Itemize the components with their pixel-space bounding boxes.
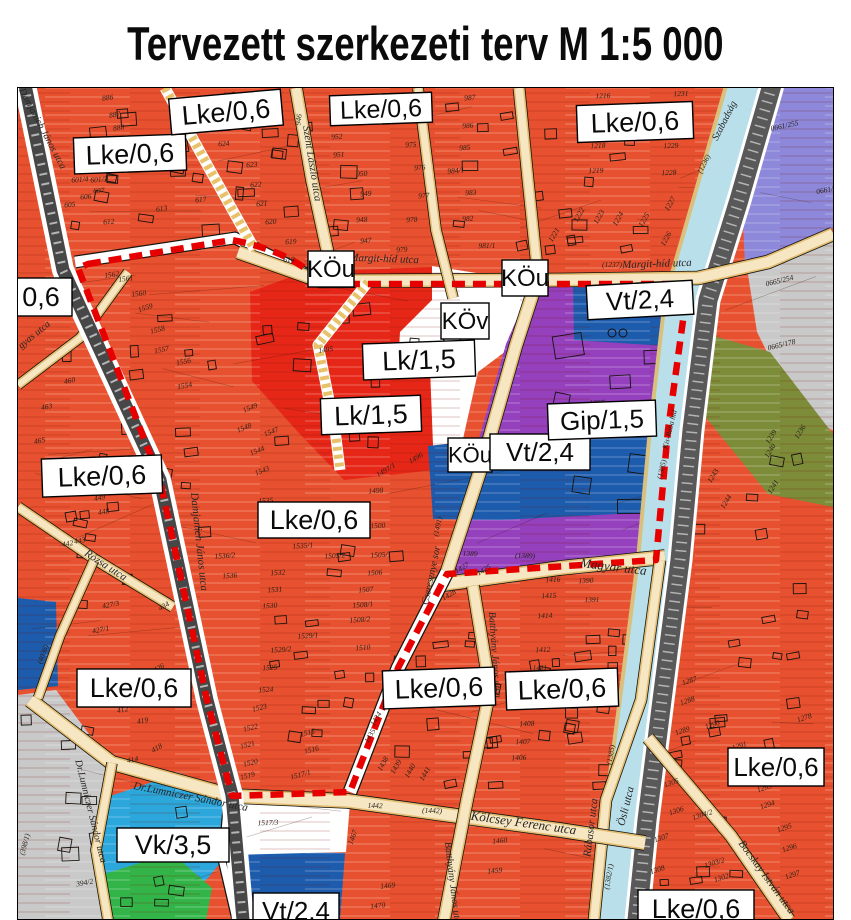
parcel-number: 1408: [519, 719, 535, 729]
parcel-number: 1460: [492, 835, 508, 846]
parcel-number: 601/3: [90, 174, 108, 184]
zone-label: Lke/0,6: [505, 668, 618, 710]
zone-label-text: Gip/1,5: [560, 403, 645, 436]
zone-label-text: Lke/0,6: [90, 673, 179, 703]
parcel-number: 613: [155, 203, 168, 214]
parcel-number: 975: [405, 140, 417, 150]
parcel-number: 623: [246, 160, 258, 170]
parcel-number: 1389: [462, 549, 478, 559]
zoning-map: 886887888899601/4601/3605606607612613617…: [17, 87, 834, 920]
zone-label: Vt/2,4: [586, 280, 694, 320]
parcel-number: 1508/2: [349, 614, 371, 624]
zone-label-text: Vk/3,5: [135, 830, 212, 860]
zone-label-text: KÖu: [448, 442, 492, 467]
zone-label: Gip/1,5: [547, 400, 656, 440]
parcel-number: 977: [418, 191, 430, 201]
zone-label: KÖu: [307, 251, 355, 287]
parcel-number: 1524: [258, 684, 274, 694]
parcel-number: 1219: [588, 166, 604, 176]
parcel-number: 952: [331, 132, 343, 142]
zone-label-text: Lke/0,6: [57, 460, 147, 493]
parcel-number: 1500: [370, 520, 386, 530]
parcel-number: 948: [356, 215, 368, 225]
parcel-number: 1469: [380, 880, 396, 891]
title-bar: Tervezett szerkezeti terv M 1:5 000: [0, 0, 851, 87]
parcel-number: 1507: [358, 584, 374, 594]
zone-label: Lk/1,5: [362, 340, 475, 380]
parcel-number: 620: [265, 217, 277, 227]
parcel-number: 947: [360, 236, 372, 246]
zone-label-text: Lke/0,6: [733, 752, 818, 782]
parcel-number: 1470: [370, 900, 386, 911]
parcel-number: 887: [108, 109, 121, 120]
parcel-number: 984/1: [447, 165, 465, 175]
zone-label: Lke/0,6: [576, 101, 693, 142]
parcel-number: 1505/1: [370, 549, 391, 559]
parcel-number: 1525: [262, 662, 278, 672]
zone-label-text: Lke/0,6: [394, 672, 484, 705]
parcel-number: 606: [80, 192, 92, 202]
parcel-number: 1510: [355, 642, 371, 652]
zone-label: KÖv: [441, 303, 489, 339]
parcel-number: 607: [93, 186, 105, 196]
zone-label: Lke/0,6: [258, 502, 370, 538]
parcel-number: 624: [218, 139, 230, 149]
map-title: Tervezett szerkezeti terv M 1:5 000: [127, 16, 723, 71]
zone-label-text: Lke/0,6: [652, 894, 741, 919]
street-label: Margit-híd utca: [621, 257, 692, 271]
zone-label: Lk/1,5: [320, 395, 421, 434]
parcel-number: 1508/1: [352, 599, 373, 609]
parcel-number: 1529/1: [297, 630, 318, 640]
parcel-number: 1530: [262, 600, 278, 610]
parcel-number: 976: [414, 163, 426, 173]
zone-label: Lke/0,6: [638, 890, 754, 919]
parcel-number: 618: [283, 255, 295, 264]
parcel-number: 617: [195, 195, 207, 205]
parcel-number: 1459: [487, 865, 503, 876]
zone-label: Lke/0,6: [41, 455, 162, 497]
zone-label-text: Lke/0,6: [85, 138, 175, 171]
parcel-number: 1498: [368, 485, 384, 495]
zone-label-text: Lke/0,6: [590, 106, 680, 139]
parcel-number: 622: [250, 180, 262, 190]
parcel-number: 982: [462, 214, 474, 224]
street-label: Margit-híd utca: [348, 252, 419, 266]
zone-label-text: Lke/0,6: [340, 94, 423, 125]
parcel-number: 619: [285, 237, 297, 247]
zone-label-text: Lke/0,6: [517, 673, 607, 706]
parcel-number: 1442: [367, 801, 383, 811]
parcel-number: (1389): [515, 551, 536, 561]
zone-label-text: Lk/1,5: [334, 399, 409, 432]
parcel-number: 1535/1: [292, 540, 313, 550]
parcel-number: 1536/2: [214, 550, 236, 560]
parcel-number: 950: [356, 169, 368, 179]
zone-label-text: Vt/2,4: [262, 896, 330, 919]
parcel-number: 621: [256, 199, 268, 209]
parcel-number: 986: [462, 121, 474, 131]
parcel-number: 886: [101, 92, 114, 103]
parcel-number: 1228: [661, 168, 677, 178]
parcel-number: 949: [360, 189, 372, 199]
parcel-number: (1237): [602, 260, 622, 269]
zone-label: Lke/0,6: [330, 92, 433, 126]
parcel-number: 1531: [267, 584, 283, 594]
zoning-map-canvas: 886887888899601/4601/3605606607612613617…: [18, 88, 833, 919]
zone-label: 0,6: [18, 278, 72, 316]
parcel-number: 1216: [595, 91, 611, 101]
parcel-number: 951: [333, 150, 345, 160]
parcel-number: 983: [465, 188, 477, 198]
zone-label-text: Lk/1,5: [382, 344, 457, 377]
parcel-number: 1415: [541, 591, 557, 601]
zone-label: Lke/0,6: [77, 669, 191, 707]
zone-label: Lke/0,6: [382, 667, 495, 709]
zone-label-text: KÖu: [307, 256, 355, 283]
parcel-number: 946: [293, 113, 304, 126]
parcel-number: 1229: [663, 141, 679, 151]
parcel-number: 985: [459, 143, 471, 153]
zone-label-text: KÖu: [501, 265, 549, 292]
zone-label: Vk/3,5: [117, 828, 229, 862]
parcel-number: 1517/3: [257, 818, 278, 828]
parcel-number: 1506: [367, 567, 383, 577]
parcel-number: (1442): [422, 806, 443, 816]
zone-label: KÖu: [448, 438, 492, 472]
zone-label-text: Lke/0,6: [270, 505, 359, 535]
parcel-number: 1407: [515, 737, 531, 747]
zone-label-text: Vt/2,4: [506, 437, 574, 467]
zone-label: Vt/2,4: [253, 893, 339, 919]
parcel-number: 1505/2: [324, 550, 346, 560]
parcel-number: 1412: [535, 645, 551, 655]
parcel-number: 978: [406, 215, 418, 225]
parcel-number: 1536: [222, 570, 238, 580]
parcel-number: 1390: [578, 576, 594, 586]
parcel-number: 981/1: [478, 241, 495, 251]
planning-map-page: Tervezett szerkezeti terv M 1:5 000 8868…: [0, 0, 851, 920]
parcel-number: 888: [112, 122, 125, 133]
parcel-number: 601/4: [71, 174, 89, 184]
parcel-number: 1406: [511, 753, 527, 763]
zone-label: Lke/0,6: [73, 134, 186, 174]
parcel-number: 612: [103, 217, 115, 227]
parcel-number: 1231: [673, 89, 688, 99]
parcel-number: 1529/2: [270, 644, 292, 654]
zone-label-text: 0,6: [22, 282, 60, 312]
zone-label-text: Vt/2,4: [605, 283, 674, 317]
zone-label: Lke/0,6: [728, 748, 824, 786]
parcel-number: 1391: [584, 595, 599, 605]
parcel-number: 1416: [545, 575, 561, 585]
zone-label-text: KÖv: [442, 308, 489, 335]
zone-label: KÖu: [501, 260, 549, 296]
parcel-number: 987: [464, 93, 476, 103]
parcel-number: 1414: [537, 611, 553, 621]
parcel-number: 605: [64, 200, 76, 210]
parcel-number: 1532: [270, 567, 286, 577]
